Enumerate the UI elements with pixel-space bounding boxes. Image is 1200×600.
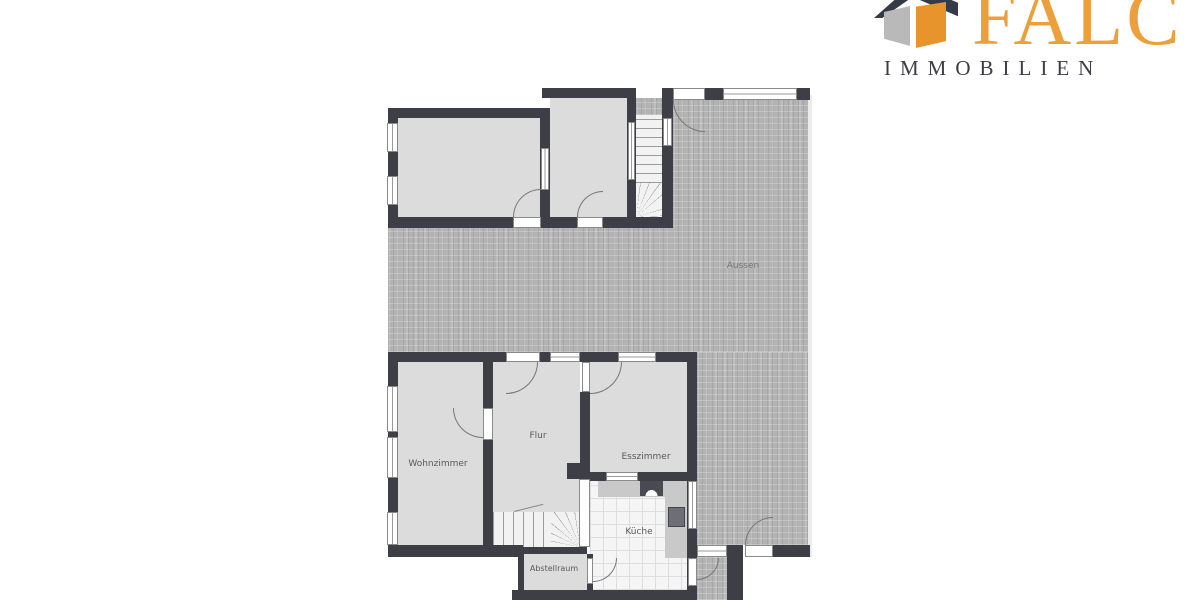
wall-segment xyxy=(727,557,743,600)
terrace-edge xyxy=(808,95,812,557)
window xyxy=(387,386,398,432)
door xyxy=(506,352,540,362)
window xyxy=(663,118,672,146)
wall-segment xyxy=(567,463,590,479)
window xyxy=(387,123,398,152)
terrace-area xyxy=(697,352,810,545)
window xyxy=(697,545,727,557)
door xyxy=(577,217,603,228)
door xyxy=(579,479,590,547)
room-label-wohnzimmer: Wohnzimmer xyxy=(393,459,483,469)
railing-post xyxy=(705,88,723,100)
lower-stairs xyxy=(493,512,553,547)
wall-segment xyxy=(580,352,618,362)
house-right-face xyxy=(916,2,946,48)
wall-segment xyxy=(388,352,506,362)
lower-stairs-winders xyxy=(551,512,580,547)
stove-icon xyxy=(640,481,663,496)
room-label-kueche: Küche xyxy=(609,527,669,537)
terrace-area xyxy=(673,98,810,352)
door xyxy=(688,558,697,586)
window xyxy=(628,122,635,180)
window xyxy=(688,481,697,529)
wall-segment xyxy=(540,352,550,362)
wall-segment xyxy=(580,392,590,463)
brand-name: FALC xyxy=(972,0,1183,64)
door xyxy=(582,362,590,392)
terrace-area xyxy=(388,228,673,352)
wall-segment xyxy=(493,547,587,554)
wall-segment xyxy=(590,472,687,481)
room-label-aussen: Aussen xyxy=(713,261,773,271)
wall-segment xyxy=(603,217,673,228)
room-label-abstellraum: Abstellraum xyxy=(519,564,589,573)
room-label-flur: Flur xyxy=(508,431,568,441)
wall-segment xyxy=(541,217,577,228)
window xyxy=(387,512,398,545)
wall-segment xyxy=(483,362,493,547)
upper-stairs xyxy=(636,115,662,183)
wall-segment xyxy=(662,88,673,228)
door xyxy=(513,217,541,228)
room-label-esszimmer: Esszimmer xyxy=(606,452,686,462)
brand-subtitle: IMMOBILIEN xyxy=(884,56,1102,81)
door xyxy=(483,408,493,440)
wall-segment xyxy=(388,108,548,118)
window xyxy=(550,352,580,362)
terrace-door xyxy=(673,88,705,100)
house-left-face xyxy=(884,6,910,46)
window xyxy=(387,437,398,478)
wall-segment xyxy=(773,545,810,557)
floor-plan-page: Wohnzimmer Flur Esszimmer Küche Abstellr… xyxy=(0,0,1200,600)
wall-segment xyxy=(727,545,743,557)
wall-segment xyxy=(388,217,513,228)
pass-through xyxy=(606,472,638,481)
upper-stairs-winders xyxy=(636,183,662,217)
wall-segment xyxy=(512,590,697,600)
window xyxy=(541,148,549,190)
window xyxy=(387,176,398,205)
sink-icon xyxy=(668,507,685,527)
railing-post xyxy=(797,88,810,100)
stair-landing xyxy=(636,98,662,115)
house-icon xyxy=(876,0,956,50)
wohnzimmer-floor xyxy=(398,362,483,545)
door xyxy=(745,545,773,557)
window xyxy=(618,352,656,362)
railing xyxy=(723,88,797,100)
wall-segment xyxy=(542,88,634,98)
